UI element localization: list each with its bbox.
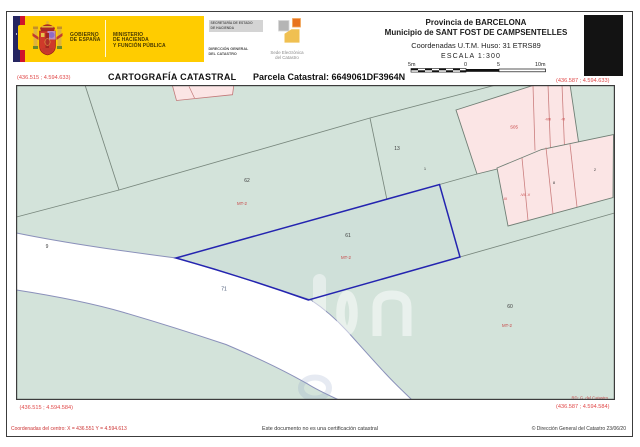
svg-text:MT-2: MT-2: [237, 201, 248, 206]
svg-text:-VII -V: -VII -V: [520, 193, 531, 197]
svg-text:62: 62: [244, 178, 250, 184]
svg-text:10m: 10m: [535, 62, 546, 68]
svg-text:5m: 5m: [408, 62, 416, 68]
svg-text:5: 5: [497, 62, 500, 68]
svg-text:-IX: -IX: [503, 197, 508, 201]
svg-text:60: 60: [507, 304, 513, 310]
svg-text:-VIII: -VIII: [545, 118, 552, 122]
svg-text:71: 71: [221, 287, 227, 293]
svg-text:-VI: -VI: [561, 118, 566, 122]
svg-text:0: 0: [464, 62, 467, 68]
svg-text:MT-2: MT-2: [341, 255, 352, 260]
svg-text:13: 13: [394, 146, 400, 152]
svg-text:S05: S05: [510, 125, 518, 130]
svg-text:61: 61: [345, 233, 351, 239]
svg-text:MT-2: MT-2: [502, 323, 513, 328]
svg-text:9: 9: [46, 244, 49, 250]
